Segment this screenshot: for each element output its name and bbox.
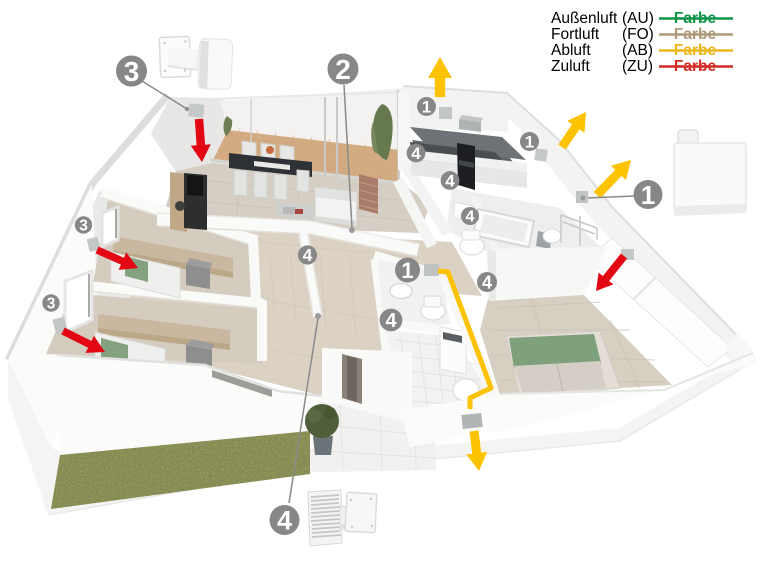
svg-text:4: 4: [445, 172, 455, 191]
svg-text:1: 1: [401, 258, 413, 283]
svg-text:4: 4: [277, 506, 292, 536]
svg-text:2: 2: [335, 54, 351, 85]
svg-text:4: 4: [385, 310, 397, 332]
svg-text:1: 1: [641, 180, 655, 210]
svg-text:3: 3: [47, 296, 56, 313]
svg-text:4: 4: [303, 245, 313, 265]
svg-text:4: 4: [466, 209, 475, 226]
svg-text:Farbe: Farbe: [674, 26, 717, 42]
svg-text:3: 3: [124, 56, 140, 87]
svg-text:4: 4: [482, 273, 492, 293]
svg-text:4: 4: [411, 144, 421, 163]
svg-text:Farbe: Farbe: [674, 10, 717, 26]
svg-text:1: 1: [525, 133, 534, 152]
svg-text:1: 1: [422, 98, 431, 117]
svg-text:Farbe: Farbe: [674, 58, 717, 74]
svg-text:Farbe: Farbe: [674, 42, 717, 58]
svg-text:3: 3: [79, 218, 88, 235]
